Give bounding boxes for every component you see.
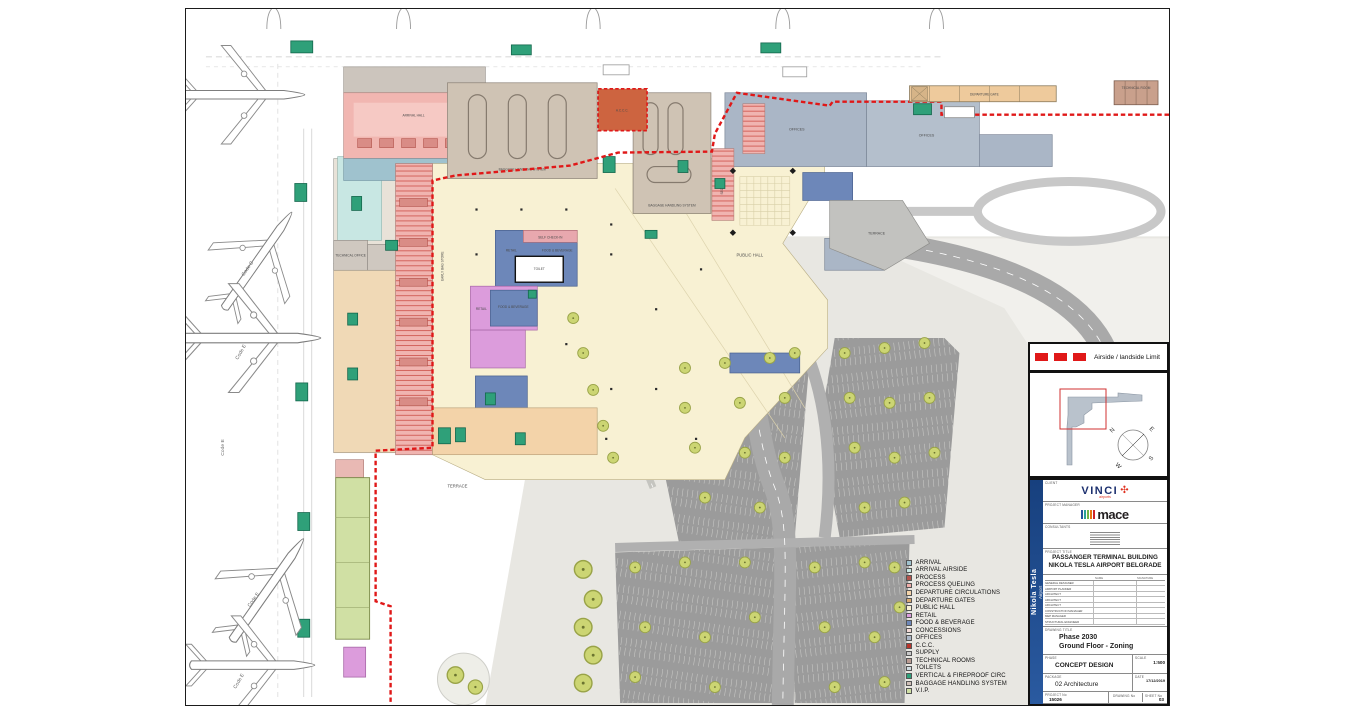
- zone-checkin: [396, 164, 433, 455]
- key-plan-figure: N E S W: [1030, 373, 1167, 476]
- label-offices: OFFICES: [789, 128, 805, 132]
- mace-logo: mace: [1081, 507, 1128, 522]
- package-value: 02 Architecture: [1055, 681, 1130, 688]
- svg-text:RETAIL: RETAIL: [476, 307, 487, 311]
- legend-item: SUPPLY: [906, 650, 1024, 658]
- label-technical-room: TECHNICAL ROOM: [1122, 86, 1151, 90]
- svg-text:W: W: [1114, 462, 1122, 470]
- label-self-checkin: SELF CHECK-IN: [538, 235, 563, 239]
- drawing-title: Phase 2030 Ground Floor - Zoning: [1059, 633, 1165, 651]
- label-departure-gate: DEPARTURE GATE: [970, 93, 999, 97]
- legend-item: PROCESS: [906, 574, 1024, 582]
- drawing-title-label: DRAWING TITLE: [1045, 628, 1072, 632]
- zone-legend: ARRIVAL ARRIVAL AIRSIDE PROCESS PROCESS …: [906, 559, 1024, 695]
- legend-item: ARRIVAL: [906, 559, 1024, 567]
- legend-item: V.I.P.: [906, 687, 1024, 695]
- north-arrow: N E S W: [1109, 426, 1155, 470]
- scale-label: SCALE: [1135, 656, 1146, 660]
- key-plan: N E S W: [1028, 371, 1169, 478]
- svg-text:N: N: [1109, 427, 1116, 434]
- legend-item: FOOD & BEVERAGE: [906, 619, 1024, 627]
- scale-value: 1:500: [1135, 660, 1165, 665]
- label-technical-office: TECHNICAL OFFICE: [335, 253, 366, 257]
- legend-item: BAGGAGE HANDLING SYSTEM: [906, 680, 1024, 688]
- legend-item: ARRIVAL AIRSIDE: [906, 567, 1024, 575]
- role-row: STRUCTURAL ENGINEER: [1045, 619, 1165, 625]
- label-public-hall: PUBLIC HALL: [737, 252, 764, 257]
- project-title-label: PROJECT TITLE: [1045, 550, 1072, 554]
- svg-text:Code E: Code E: [220, 438, 226, 455]
- drawing-canvas: TECHNICAL OFFICE ARRIVAL HALL BAGGAGE HA…: [0, 0, 1350, 709]
- project-title: PASSANGER TERMINAL BUILDING NIKOLA TESLA…: [1045, 554, 1165, 570]
- airside-limit-label: Airside / landside Limit: [1094, 354, 1160, 361]
- drawing-no-label: DRAWING No: [1113, 694, 1135, 698]
- client-label: CLIENT: [1045, 481, 1058, 485]
- revision-value: 03: [1159, 697, 1164, 702]
- title-block: Nikola Tesla Airport CLIENT VINCI ✣ airp…: [1028, 478, 1169, 706]
- consultants-label: CONSULTANTS: [1045, 525, 1070, 529]
- red-dash-swatch: [1035, 353, 1048, 361]
- label-offices-2: OFFICES: [919, 134, 935, 138]
- legend-item: PROCESS QUELING: [906, 582, 1024, 590]
- airside-limit-legend: Airside / landside Limit: [1028, 342, 1169, 372]
- label-accc: A.C.C.C.: [616, 109, 629, 113]
- parking-lot: [820, 338, 960, 537]
- phase-value: CONCEPT DESIGN: [1055, 662, 1130, 669]
- legend-item: TOILETS: [906, 665, 1024, 673]
- vinci-symbol-icon: ✣: [1120, 486, 1128, 496]
- date-value: 17/12/2019: [1135, 679, 1165, 683]
- legend-item: DEPARTURE GATES: [906, 597, 1024, 605]
- legend-item: TECHNICAL ROOMS: [906, 657, 1024, 665]
- label-toilet: TOILET: [534, 267, 545, 271]
- date-label: DATE: [1135, 675, 1144, 679]
- pm-label: PROJECT MANAGER: [1045, 503, 1080, 507]
- brand-title: Nikola Tesla: [1031, 569, 1038, 615]
- label-fnb: FOOD & BEVERAGE: [542, 248, 573, 252]
- red-dash-swatch: [1073, 353, 1086, 361]
- legend-item: PUBLIC HALL: [906, 604, 1024, 612]
- project-no-value: 15026: [1049, 697, 1106, 702]
- label-retail: RETAIL: [506, 248, 517, 252]
- package-label: PACKAGE: [1045, 675, 1062, 679]
- svg-text:E: E: [1148, 426, 1155, 433]
- legend-item: DEPARTURE CIRCULATIONS: [906, 589, 1024, 597]
- svg-text:S: S: [1148, 455, 1155, 462]
- zone-vip: [336, 478, 370, 640]
- project-no-label: PROJECT No: [1045, 693, 1067, 697]
- legend-item: OFFICES: [906, 634, 1024, 642]
- red-dash-swatch: [1054, 353, 1067, 361]
- label-early-bag: EARLY BAG STORE: [440, 251, 444, 281]
- legend-item: RETAIL: [906, 612, 1024, 620]
- label-arrival-hall: ARRIVAL HALL: [402, 114, 424, 118]
- label-bhs-2: BAGGAGE HANDLING SYSTEM: [648, 203, 696, 207]
- svg-text:FOOD & BEVERAGE: FOOD & BEVERAGE: [498, 305, 529, 309]
- label-terrace-2: TERRACE: [447, 484, 467, 489]
- label-terrace: TERRACE: [868, 231, 886, 235]
- vinci-airports: airports: [1099, 495, 1111, 499]
- legend-item: VERTICAL & FIREPROOF CIRC: [906, 672, 1024, 680]
- consultants-logo: [1090, 532, 1120, 545]
- phase-label: PHASE: [1045, 656, 1057, 660]
- title-block-brand-strip: Nikola Tesla Airport: [1030, 480, 1043, 704]
- legend-item: CONCESSIONS: [906, 627, 1024, 635]
- legend-item: C.C.C.: [906, 642, 1024, 650]
